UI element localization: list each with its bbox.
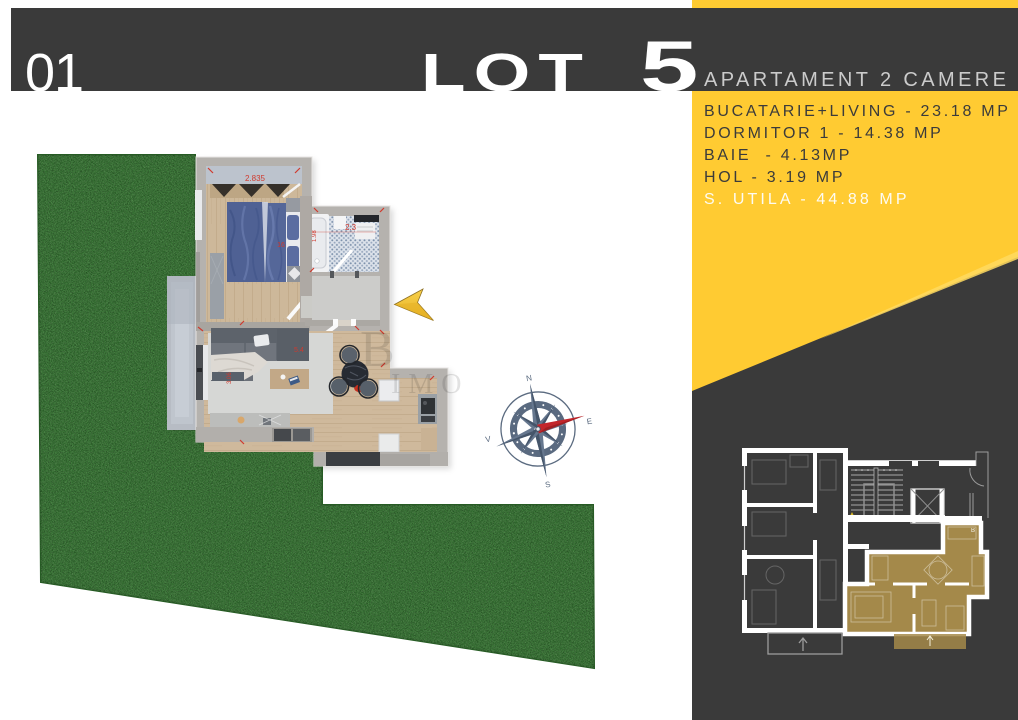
svg-text:APARTAMENT 2 CAMERE: APARTAMENT 2 CAMERE (704, 69, 1009, 91)
svg-text:16: 16 (277, 242, 285, 249)
svg-text:3.06: 3.06 (227, 372, 233, 384)
svg-text:01: 01 (25, 43, 83, 103)
svg-text:S. UTILA - 44.88 MP: S. UTILA - 44.88 MP (704, 191, 910, 208)
svg-text:BUCATARIE+LIVING - 23.18 MP: BUCATARIE+LIVING - 23.18 MP (704, 103, 1011, 120)
svg-text:5: 5 (640, 28, 698, 107)
svg-text:B: B (360, 321, 395, 378)
svg-text:LOT: LOT (421, 42, 591, 103)
svg-text:2.835: 2.835 (245, 174, 266, 183)
svg-text:I M O: I M O (391, 369, 462, 400)
svg-text:B: B (971, 528, 975, 534)
svg-text:DORMITOR 1 - 14.38 MP: DORMITOR 1 - 14.38 MP (704, 125, 944, 142)
svg-text:BAIE - 4.13MP: BAIE - 4.13MP (704, 147, 852, 164)
svg-text:HOL - 3.19 MP: HOL - 3.19 MP (704, 169, 845, 186)
svg-text:1.98: 1.98 (312, 230, 318, 242)
svg-text:5.4: 5.4 (294, 347, 304, 354)
svg-text:2.3: 2.3 (345, 223, 357, 232)
